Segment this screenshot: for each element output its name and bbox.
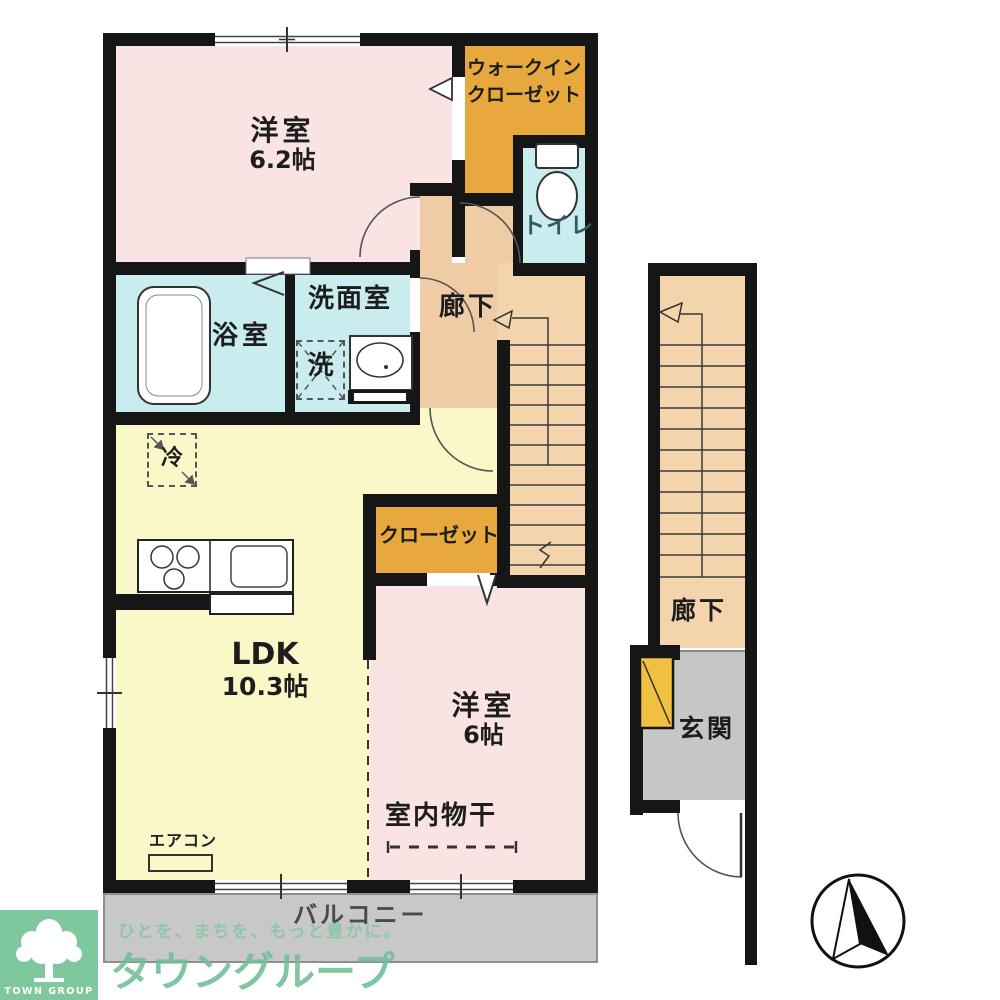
room-label-aircon: エアコン (149, 832, 217, 850)
wall-kitchen-return (116, 594, 210, 610)
room-label-bedroom-6-2: 洋室 6.2帖 (225, 115, 340, 175)
bedroom-6-2-size: 6.2帖 (249, 146, 316, 174)
room-stairs-left (497, 263, 585, 575)
room-label-laundry: 洗 (296, 352, 345, 382)
wic-line1: ウォークイン (467, 57, 581, 79)
wall-left (103, 33, 116, 893)
wall-toilet-left (513, 148, 523, 263)
watermark-brand: タウングループ (110, 938, 395, 998)
room-toilet (523, 148, 585, 263)
wall-washroom-right-bottom (410, 332, 420, 412)
town-group-logo: TOWN GROUP (0, 910, 98, 1000)
bedroom-6-name: 洋室 (451, 689, 515, 722)
wic-line2: クローゼット (467, 84, 581, 106)
ldk-name: LDK (231, 637, 298, 672)
room-label-hallway: 廊下 (439, 293, 497, 323)
floor-plan: 洋室 6.2帖 ウォークイン クローゼット トイレ 浴室 洗面室 洗 廊下 冷 … (0, 0, 1000, 1000)
room-label-indoor-drying: 室内物干 (385, 802, 497, 832)
room-label-entrance: 玄関 (679, 715, 735, 744)
wall-washroom-right-top (410, 262, 420, 278)
bedroom-6-2-name: 洋室 (250, 114, 314, 147)
wall-bedroom1-bottom (116, 262, 410, 275)
room-hallway-toilet-front (465, 206, 513, 263)
wall-rblock-right (745, 263, 757, 965)
room-ldk-mid (363, 425, 420, 494)
room-label-ldk: LDK 10.3帖 (200, 638, 330, 701)
ldk-size: 10.3帖 (222, 672, 309, 701)
wall-entrance-top (630, 645, 680, 660)
wall-closet-top (363, 494, 500, 507)
room-label-closet: クローゼット (379, 524, 495, 547)
wall-wetrow-bottom (116, 412, 420, 425)
wall-stairs-bottom (497, 575, 598, 588)
wall-closet-bottom-r (490, 573, 500, 586)
room-label-washroom: 洗面室 (308, 285, 392, 315)
wall-rblock-top (648, 263, 757, 276)
wall-bottom (103, 880, 598, 893)
wall-top (103, 33, 598, 46)
wall-toilet-top (513, 135, 585, 148)
room-hallway-strip (420, 196, 452, 263)
bedroom-6-size: 6帖 (463, 721, 504, 749)
room-label-fridge: 冷 (147, 446, 197, 471)
wall-rblock-left (648, 276, 660, 648)
wall-strip-hinge (410, 250, 420, 262)
room-label-toilet: トイレ (522, 213, 594, 239)
room-hallway-main (420, 263, 497, 412)
room-label-bath: 浴室 (212, 322, 272, 352)
wall-entrance-bottom (630, 800, 680, 813)
compass-icon (812, 875, 904, 967)
wall-strip-top (410, 183, 452, 196)
wall-entrance-left (630, 660, 643, 815)
room-ldk-ext (420, 408, 497, 494)
wall-closet-bottom-l (363, 573, 427, 586)
logo-caption: TOWN GROUP (0, 986, 98, 997)
entrance-door-arc (678, 813, 742, 877)
wall-bath-divider (285, 275, 295, 412)
wall-right (585, 33, 598, 893)
room-stair-hall-right (660, 276, 745, 648)
wall-toilet-bottom (513, 263, 585, 276)
room-label-stair-hallway: 廊下 (671, 597, 727, 626)
room-label-bedroom-6: 洋室 6帖 (426, 690, 541, 750)
room-label-wic: ウォークイン クローゼット (458, 55, 590, 108)
aircon-unit-box (148, 854, 213, 872)
